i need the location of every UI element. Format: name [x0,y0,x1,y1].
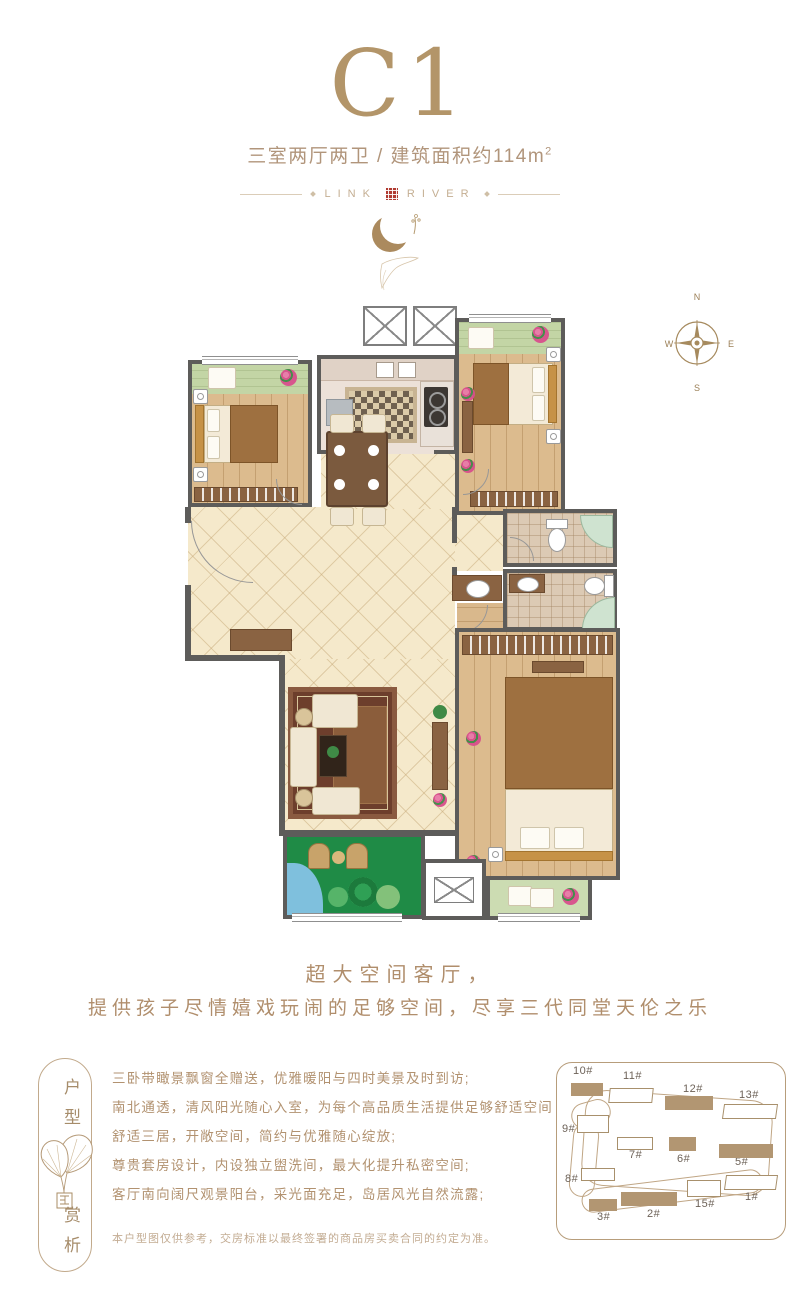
elevator-x-icon [434,877,474,903]
moon-emblem [352,206,462,306]
window-band [292,913,402,922]
plate [368,479,379,490]
plate [334,479,345,490]
nightstand [546,347,561,362]
svg-text:W: W [665,339,674,349]
building-3 [589,1199,617,1211]
nightstand [193,389,208,404]
burner-icon [429,392,446,409]
vent-shaft-icon [413,306,457,346]
window-band [202,356,298,365]
sofa-armchair [312,787,360,815]
window-band [469,314,551,323]
crescent-moon-icon [380,208,416,244]
bed-headboard [505,851,613,861]
nightstand [546,429,561,444]
building-1 [724,1175,778,1190]
building-label: 3# [597,1211,610,1223]
console-table [432,722,448,790]
svg-text:S: S [694,383,700,393]
feature-item: 南北通透，清风阳光随心入室，为每个高品质生活提供足够舒适空间 [112,1093,552,1122]
bed-headboard [195,405,204,463]
flower-pot [461,387,475,401]
entry-cabinet [230,629,292,651]
bay-pillow [208,367,236,389]
flower-pot [532,326,549,343]
bed-blanket [230,405,278,463]
building-2 [621,1192,677,1206]
side-table-lamp [295,789,313,807]
unit-spec-subtitle: 三室两厅两卫 / 建筑面积约114m2 [0,141,800,168]
toilet-icon [546,519,566,553]
feature-item: 三卧带瞰景飘窗全赠送，优雅暖阳与四时美景及时到访; [112,1064,552,1093]
floor-plan [180,303,635,940]
compass-icon: N W E S [664,290,736,394]
building-label: 2# [647,1208,660,1220]
page-title: C1 [0,36,800,133]
wardrobe [470,491,558,507]
bed-pillow [207,436,220,459]
dining-table [326,431,388,507]
window-band [498,913,580,922]
building-12 [665,1096,713,1110]
coffee-table [319,735,347,777]
dining-chair [330,507,354,526]
sqm-superscript: 2 [545,146,553,158]
building-label: 10# [573,1065,593,1077]
building-8 [581,1168,615,1181]
garden-chair [346,843,368,869]
bed-pillow [554,827,584,849]
sidebar-capsule: 户型 赏析 [38,1058,92,1272]
building-11 [608,1088,654,1103]
garden-bush [376,885,400,909]
nightstand [488,847,503,862]
side-table-lamp [295,708,313,726]
bed-pillow [532,367,545,393]
garden-chair [308,843,330,869]
brand-diamond-right [484,191,490,197]
garden-tree [348,877,378,907]
building-label: 6# [677,1153,690,1165]
potted-plant [433,705,447,719]
flower-pot [280,369,297,386]
brand-line-right [498,194,560,195]
dining-chair [362,414,386,433]
svg-text:E: E [728,339,734,349]
building-5 [719,1144,773,1158]
feature-item: 舒适三居，开敞空间，简约与优雅随心绽放; [112,1122,552,1151]
dining-chair [330,414,354,433]
corridor-floor [455,507,503,571]
feature-item: 尊贵套房设计，内设独立盥洗间，最大化提升私密空间; [112,1151,552,1180]
master-closet [462,635,613,655]
nightstand [193,467,208,482]
building-7 [617,1137,653,1150]
kitchen-sink-top [398,362,416,378]
bay-pillow [530,888,554,908]
flower-pot [562,888,579,905]
bed-headboard [548,365,557,423]
garden-table [332,851,345,864]
brand-seal-icon [386,188,398,200]
flower-pot [433,793,447,807]
site-map: 10# 11# 12# 13# 9# 7# 6# 5# 8# 3# 2# 15#… [556,1062,786,1240]
bed-pillow [520,827,550,849]
slogan-line1: 超大空间客厅， [0,958,800,987]
burner-icon [429,409,446,426]
bed-pillow [207,409,220,432]
bay-pillow [508,886,532,906]
sidebar-label-bottom: 赏析 [58,1201,112,1271]
bay-pillow [468,327,494,349]
building-label: 7# [629,1149,642,1161]
vent-shaft-icon [363,306,407,346]
bed-blanket [473,363,509,425]
sofa-armchair [312,694,358,728]
bed-blanket [505,677,613,789]
bed-pillow [532,395,545,421]
feature-item: 客厅南向阔尺观景阳台，采光面充足，岛居风光自然流露; [112,1180,552,1209]
brand-name-right: RIVER [407,188,476,200]
poster-canvas: C1 三室两厅两卫 / 建筑面积约114m2 LINK RIVER N W E … [0,0,800,1300]
brand-name-left: LINK [324,188,376,200]
building-label: 15# [695,1198,715,1210]
washbasin-sink [466,580,490,598]
building-13 [722,1104,778,1119]
feature-list: 三卧带瞰景飘窗全赠送，优雅暖阳与四时美景及时到访; 南北通透，清风阳光随心入室，… [112,1064,552,1209]
slogan-line2: 提供孩子尽情嬉戏玩闹的足够空间，尽享三代同堂天伦之乐 [0,993,800,1020]
dining-chair [362,507,386,526]
brand-logo-row: LINK RIVER [0,188,800,200]
building-label: 12# [683,1083,703,1095]
building-label: 9# [562,1123,575,1135]
plate [368,445,379,456]
brand-diamond-left [311,191,317,197]
desk-cabinet [462,401,473,453]
brand-line-left [240,194,302,195]
building-10 [571,1083,603,1096]
disclaimer-text: 本户型图仅供参考，交房标准以最终签署的商品房买卖合同的约定为准。 [112,1230,496,1246]
kitchen-sink-top [376,362,394,378]
table-plant [327,746,339,758]
building-6 [669,1137,696,1151]
bed-bench [532,661,584,673]
building-9 [577,1115,609,1133]
garden-bush [328,887,348,907]
unit-spec-text: 三室两厅两卫 / 建筑面积约114m [247,146,545,167]
svg-text:N: N [694,292,701,302]
wall-segment [185,585,191,659]
building-label: 11# [623,1070,642,1082]
wall-segment [452,507,457,543]
wall-segment [185,655,285,661]
bath-sink [517,577,539,592]
building-15 [687,1180,721,1197]
building-label: 13# [739,1089,759,1101]
flower-pot [466,731,481,746]
plate [334,445,345,456]
building-label: 8# [565,1173,578,1185]
building-label: 1# [745,1191,758,1203]
wall-segment [279,659,285,835]
toilet-icon [584,575,612,595]
sofa-left [290,727,317,787]
